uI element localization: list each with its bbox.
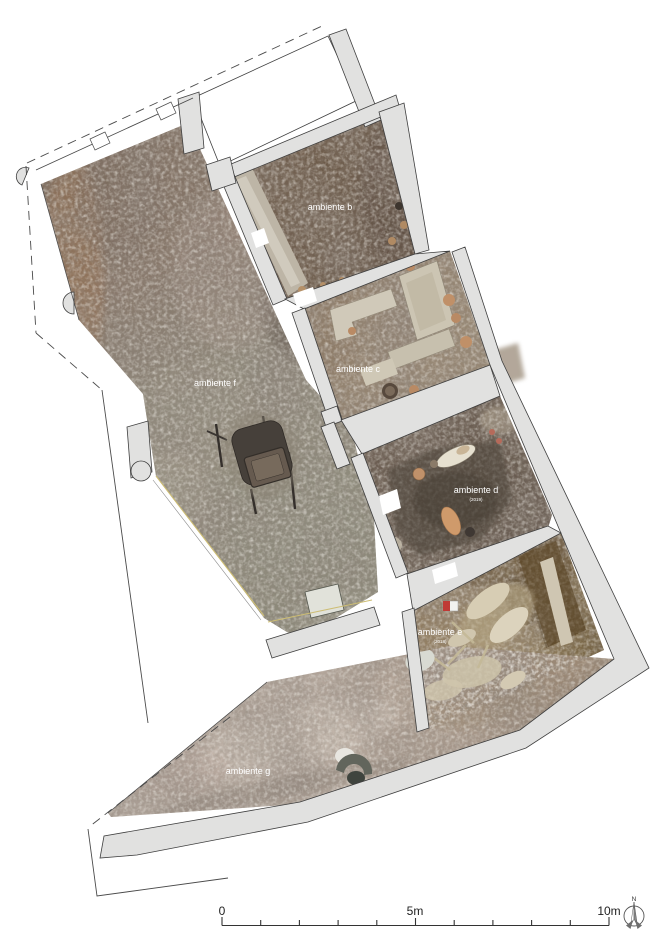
svg-text:(2018): (2018) <box>433 639 447 644</box>
svg-text:ambiente d: ambiente d <box>454 485 499 495</box>
svg-text:(2019): (2019) <box>469 497 483 502</box>
svg-text:N: N <box>632 896 637 903</box>
svg-text:ambiente e: ambiente e <box>418 627 463 637</box>
svg-text:ambiente f: ambiente f <box>194 378 237 388</box>
svg-text:5m: 5m <box>407 904 424 918</box>
svg-text:ambiente g: ambiente g <box>226 766 271 776</box>
svg-text:0: 0 <box>219 904 226 918</box>
svg-text:ambiente b: ambiente b <box>308 202 353 212</box>
svg-text:ambiente c: ambiente c <box>336 364 381 374</box>
svg-text:10m: 10m <box>597 904 620 918</box>
